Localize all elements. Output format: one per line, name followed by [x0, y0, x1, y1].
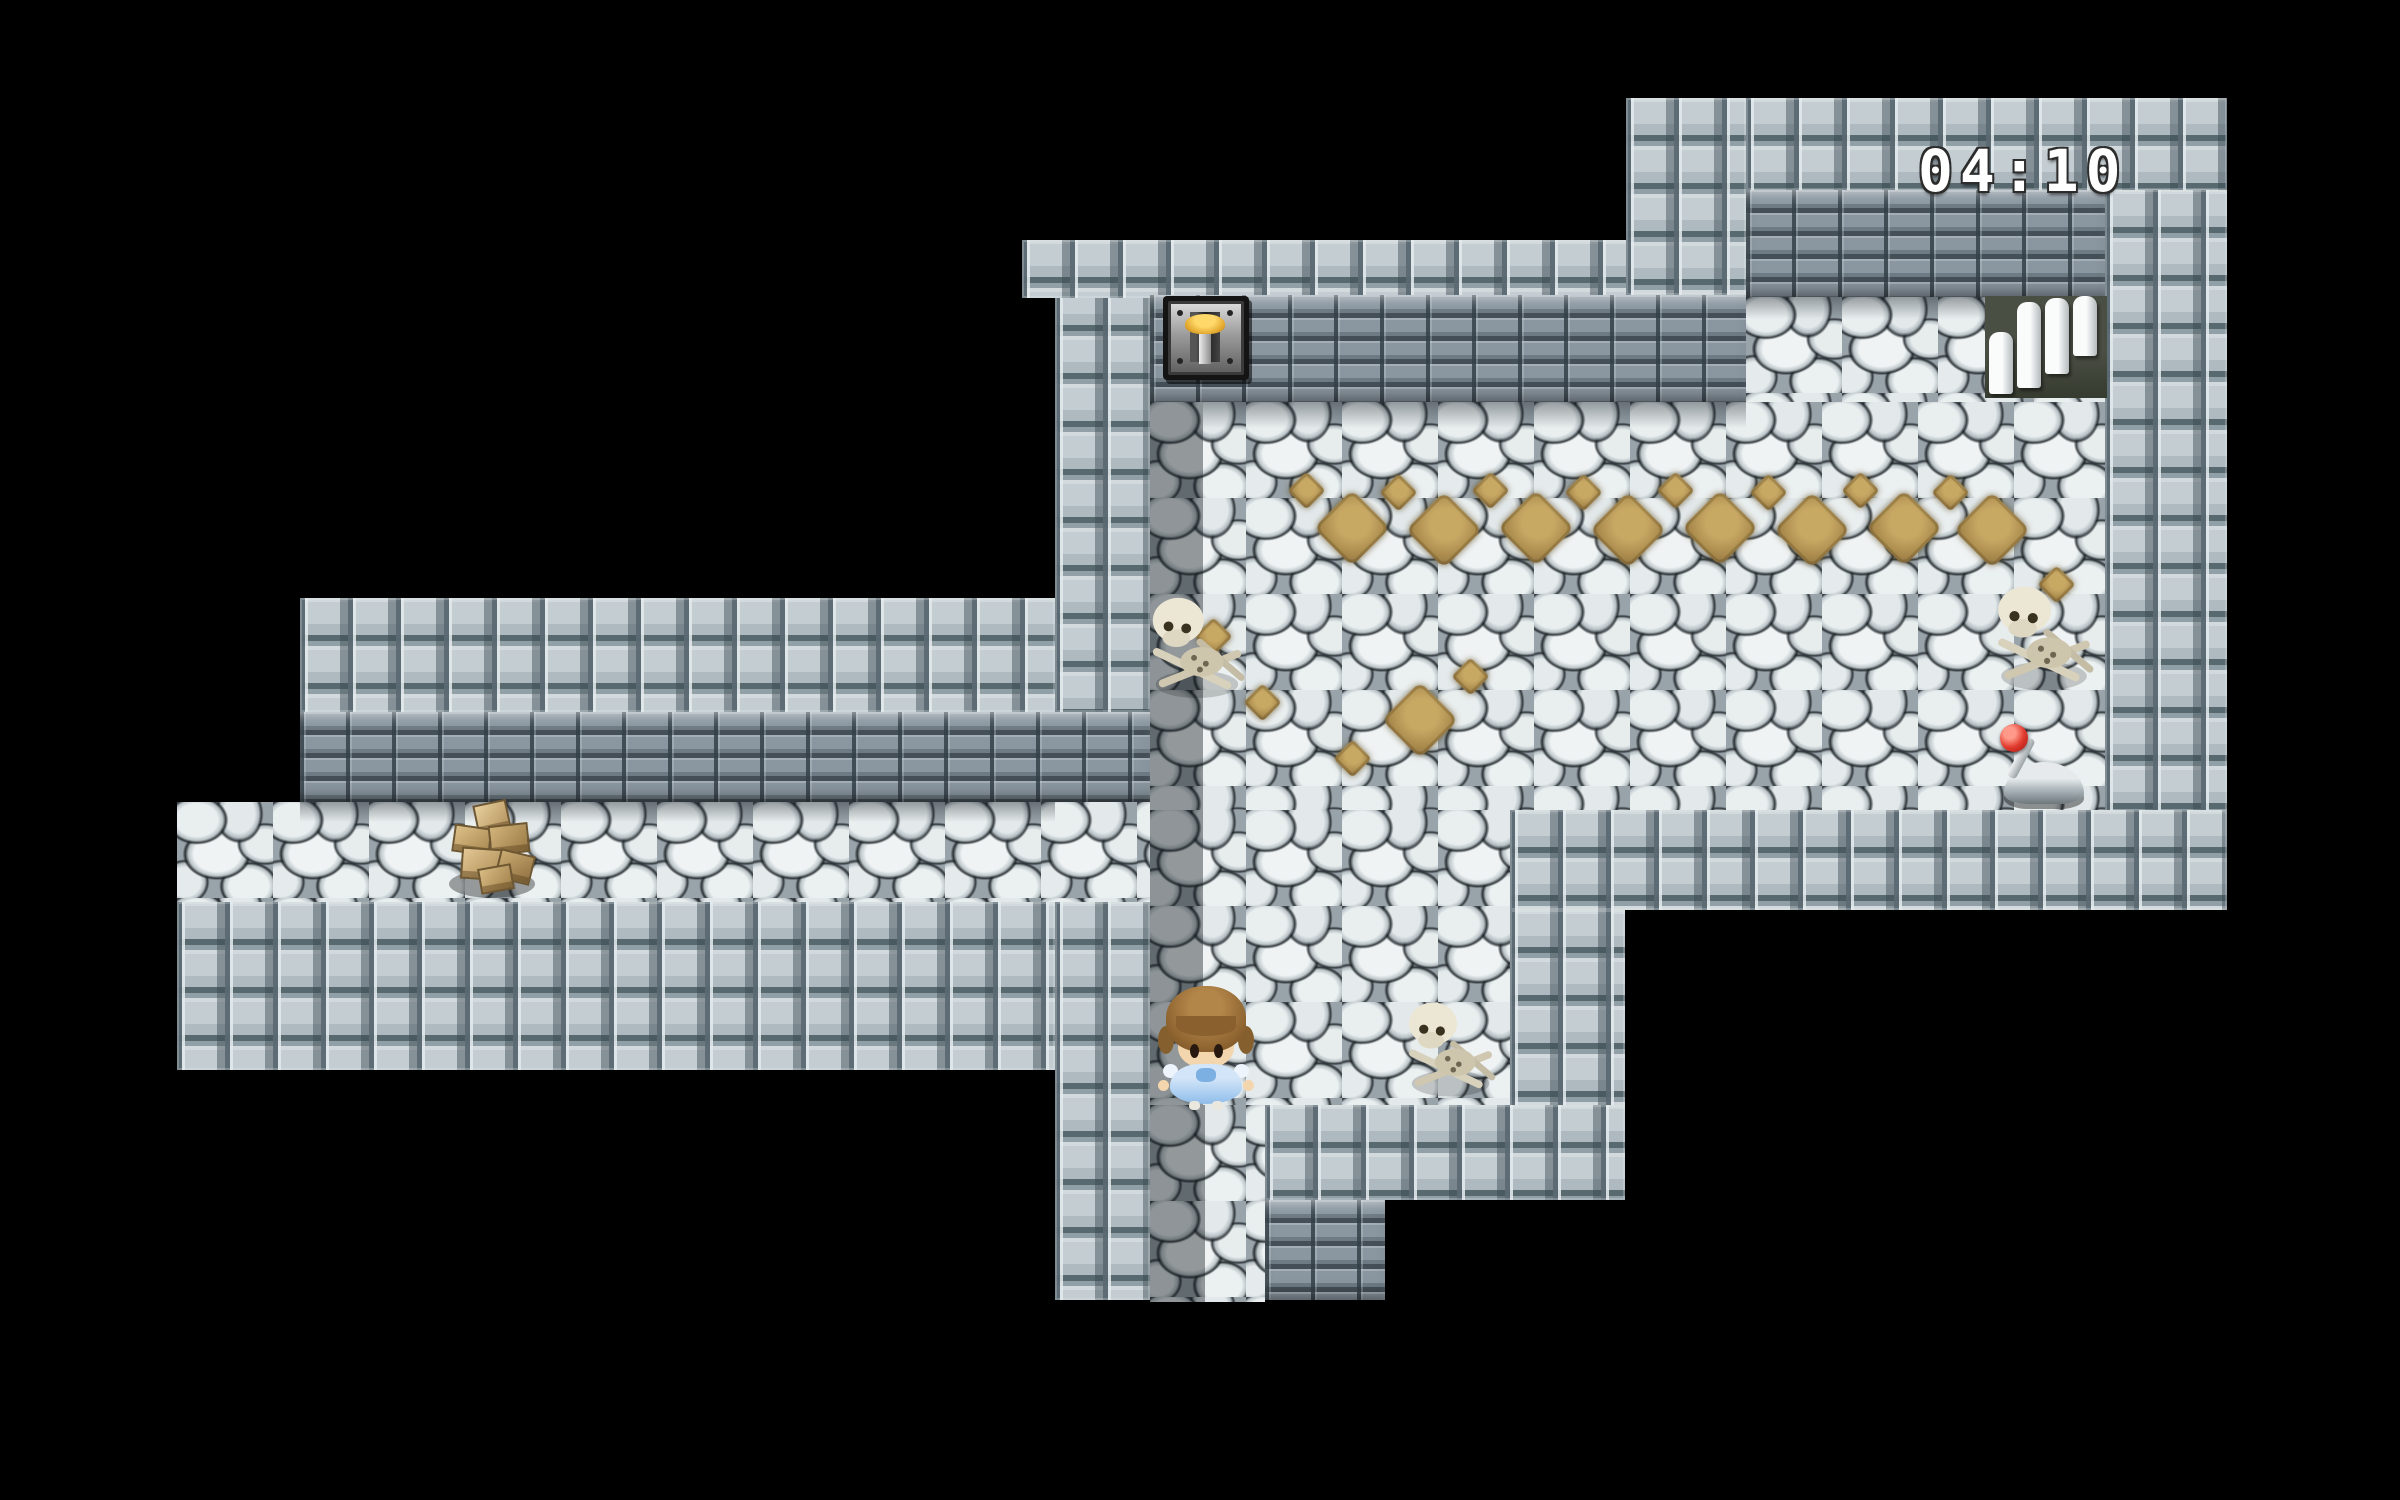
stair-step — [2045, 298, 2069, 374]
skeleton-icon — [1143, 590, 1251, 705]
stair-step — [1989, 332, 2013, 394]
skeleton-remains — [1988, 578, 2100, 698]
stairs-up[interactable] — [1985, 296, 2107, 398]
stair-step — [2017, 302, 2041, 388]
skeleton-remains — [1143, 590, 1251, 705]
wall-lever-switch[interactable] — [1163, 296, 1249, 380]
screw-icon — [1177, 310, 1183, 316]
wall-top-exit-south-band — [1265, 1105, 1625, 1200]
wall-top-left-corridor-north — [300, 598, 1055, 712]
screw-icon — [1177, 358, 1183, 364]
skeleton-icon — [1988, 578, 2100, 698]
eye — [1190, 1044, 1199, 1058]
hand — [1243, 1080, 1254, 1091]
countdown-timer: 04:10 — [1918, 142, 2178, 202]
hand — [1158, 1080, 1169, 1091]
lever-gold-knob — [1185, 314, 1225, 334]
floor-central-room[interactable] — [1150, 402, 2105, 810]
floor-shadow-main-north — [1203, 402, 1746, 428]
eye — [1214, 1044, 1223, 1058]
skeleton-icon — [1393, 996, 1508, 1102]
wall-top-bottom-left-band — [177, 902, 1055, 1070]
wall-top-right-room-east — [2105, 190, 2227, 910]
wall-top-main-west-column — [1055, 240, 1150, 712]
red-orb-icon — [2000, 724, 2028, 752]
hair-fringe — [1176, 1016, 1236, 1036]
dress-bow — [1196, 1068, 1216, 1082]
floor-shadow-corridor — [300, 802, 1055, 822]
foot — [1189, 1101, 1200, 1110]
wall-top-right-room-nw — [1626, 98, 1746, 295]
wall-face-right-room-north — [1746, 190, 2105, 297]
skeleton-remains — [1393, 996, 1508, 1102]
stair-step — [2073, 296, 2097, 356]
rubble-pile — [445, 800, 540, 905]
floor-lever-red-orb[interactable] — [1992, 724, 2096, 810]
wall-top-exit-west-column — [1055, 902, 1150, 1300]
foot — [1212, 1101, 1223, 1110]
screw-icon — [1227, 358, 1233, 364]
wall-top-south-band — [1510, 810, 2227, 910]
floor-shadow-exit-column — [1150, 1105, 1205, 1302]
game-viewport[interactable]: 04:10 — [0, 0, 2400, 1500]
wall-face-exit-south — [1265, 1200, 1385, 1300]
player-character — [1160, 982, 1252, 1110]
screw-icon — [1227, 310, 1233, 316]
wall-face-left-corridor — [300, 712, 1150, 802]
